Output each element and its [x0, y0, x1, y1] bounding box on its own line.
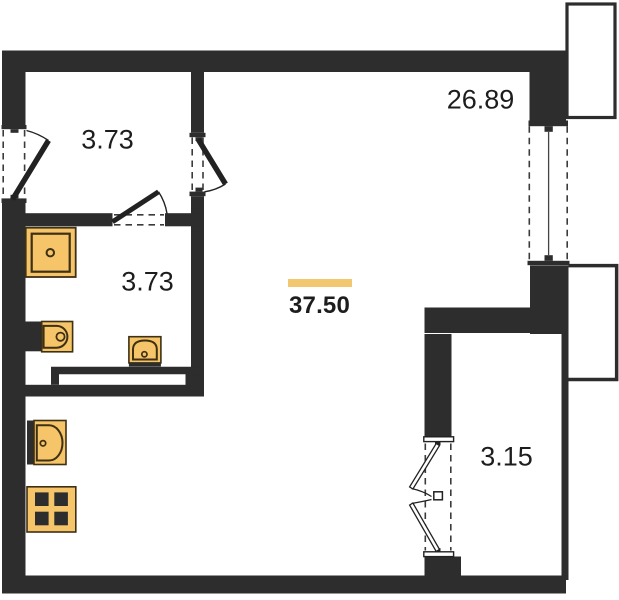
svg-text:3.73: 3.73 — [121, 267, 174, 297]
svg-text:26.89: 26.89 — [447, 85, 515, 115]
svg-text:3.73: 3.73 — [81, 125, 134, 155]
svg-text:3.15: 3.15 — [480, 442, 533, 472]
svg-text:37.50: 37.50 — [289, 292, 350, 319]
